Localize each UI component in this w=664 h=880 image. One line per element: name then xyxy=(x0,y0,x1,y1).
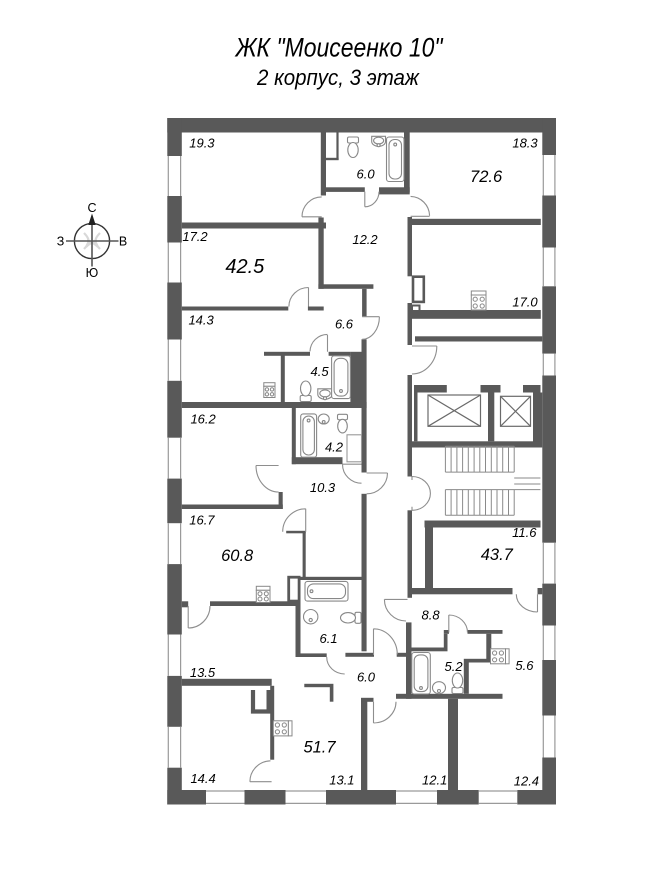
svg-text:12.1: 12.1 xyxy=(422,772,447,787)
svg-text:19.3: 19.3 xyxy=(189,135,215,150)
svg-text:5.2: 5.2 xyxy=(445,659,464,674)
svg-text:43.7: 43.7 xyxy=(481,546,514,564)
svg-text:Ю: Ю xyxy=(86,266,99,280)
svg-text:42.5: 42.5 xyxy=(225,256,265,278)
svg-text:12.4: 12.4 xyxy=(514,773,539,788)
svg-text:5.6: 5.6 xyxy=(515,658,534,673)
svg-text:14.4: 14.4 xyxy=(190,771,215,786)
svg-text:10.3: 10.3 xyxy=(310,480,336,495)
svg-text:6.0: 6.0 xyxy=(357,669,376,684)
svg-text:16.7: 16.7 xyxy=(189,512,215,527)
svg-text:ЖК "Моисеенко 10": ЖК "Моисеенко 10" xyxy=(234,33,444,63)
svg-text:13.5: 13.5 xyxy=(190,665,216,680)
svg-text:6.6: 6.6 xyxy=(335,316,354,331)
svg-text:13.1: 13.1 xyxy=(329,772,354,787)
svg-text:6.0: 6.0 xyxy=(357,166,376,181)
svg-text:З: З xyxy=(57,235,65,249)
svg-text:12.2: 12.2 xyxy=(352,232,378,247)
svg-text:4.5: 4.5 xyxy=(311,364,330,379)
svg-text:14.3: 14.3 xyxy=(188,312,214,327)
svg-text:2 корпус, 3 этаж: 2 корпус, 3 этаж xyxy=(256,65,420,90)
svg-text:17.0: 17.0 xyxy=(512,295,538,310)
svg-text:8.8: 8.8 xyxy=(422,607,441,622)
svg-text:17.2: 17.2 xyxy=(182,229,208,244)
svg-text:С: С xyxy=(87,201,96,215)
svg-text:4.2: 4.2 xyxy=(325,440,344,455)
svg-text:60.8: 60.8 xyxy=(221,547,254,565)
svg-text:72.6: 72.6 xyxy=(470,168,503,186)
svg-text:18.3: 18.3 xyxy=(512,136,538,151)
svg-text:51.7: 51.7 xyxy=(303,738,336,756)
svg-text:11.6: 11.6 xyxy=(512,525,537,540)
svg-text:6.1: 6.1 xyxy=(320,631,338,646)
svg-text:16.2: 16.2 xyxy=(190,412,216,427)
svg-text:В: В xyxy=(119,235,127,249)
